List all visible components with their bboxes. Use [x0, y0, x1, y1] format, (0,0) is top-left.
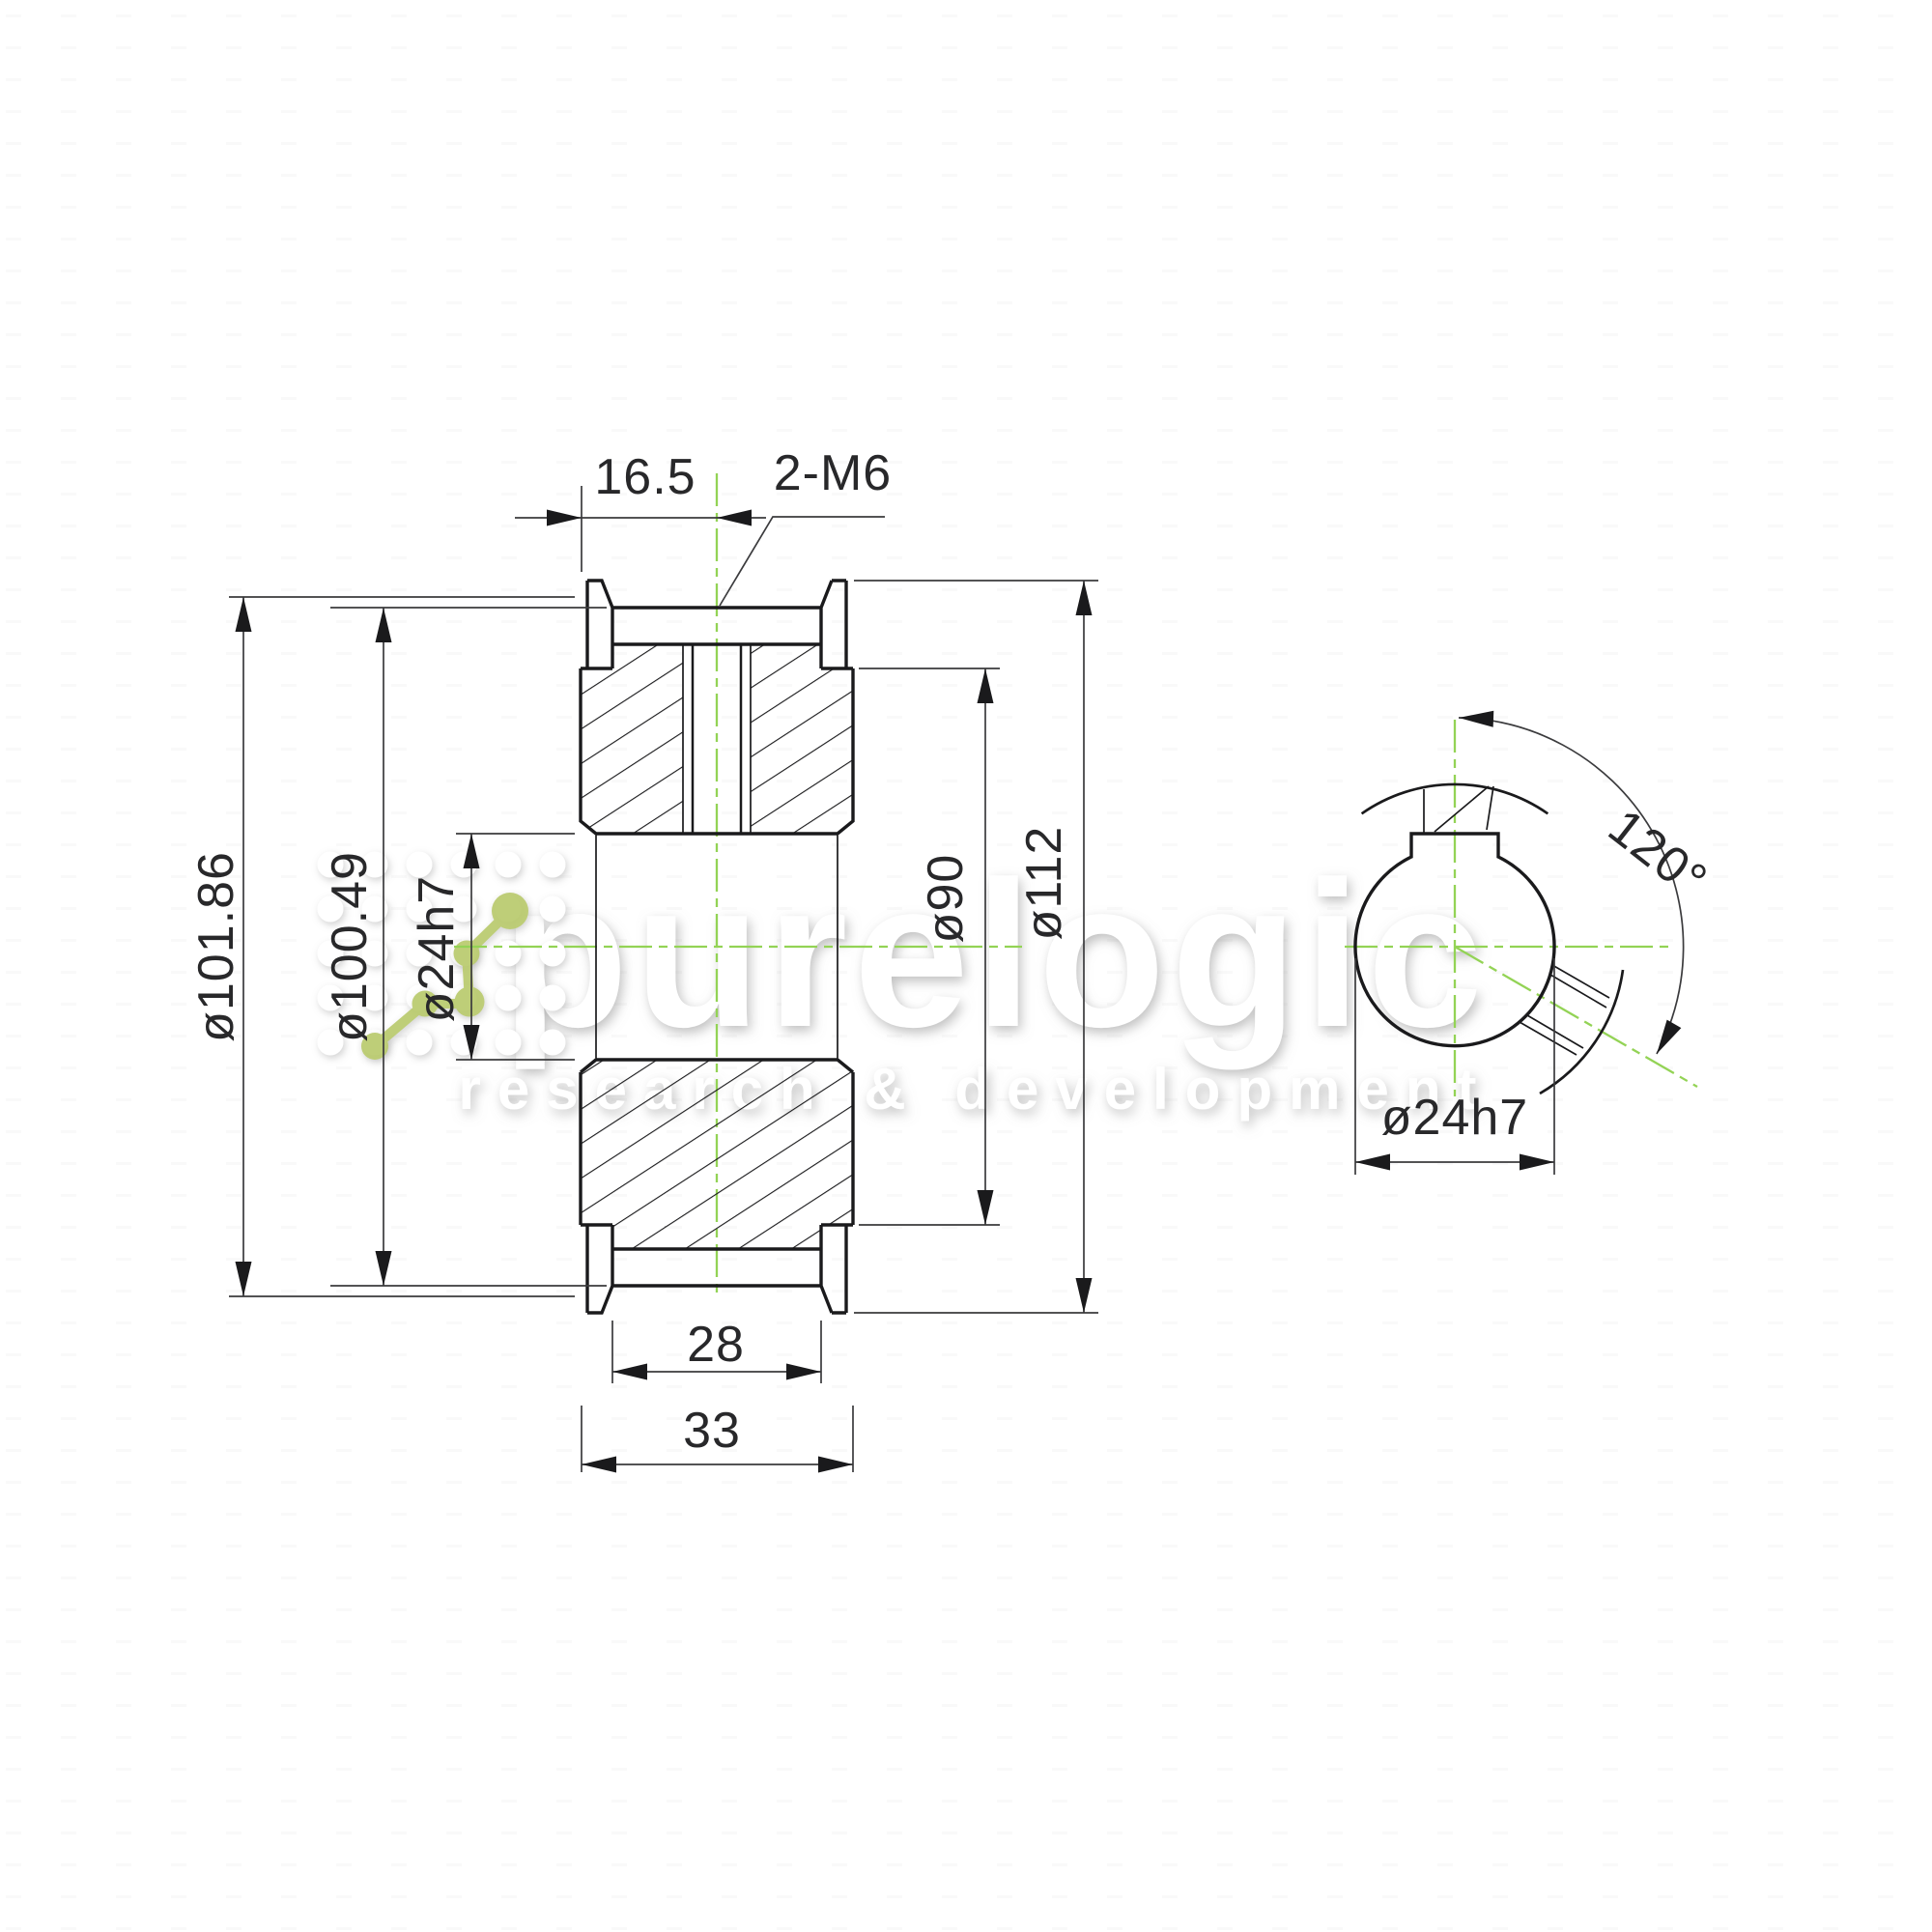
- section-hatch-upper-left: [581, 644, 683, 834]
- dim-label-dia-112: ø112: [1016, 826, 1072, 941]
- watermark-dot: [407, 852, 433, 878]
- watermark-dot: [540, 985, 566, 1011]
- dim-label-2-m6: 2-M6: [774, 445, 892, 501]
- watermark-dot: [540, 852, 566, 878]
- watermark-dot: [496, 985, 522, 1011]
- watermark-dot: [540, 896, 566, 923]
- watermark-dot: [496, 1030, 522, 1056]
- dim-label-dia-101-86: ø101.86: [188, 851, 244, 1042]
- section-hatch-lower: [581, 1060, 853, 1249]
- dim-label-offset-16-5: 16.5: [594, 449, 696, 505]
- dim-label-dia-24h7-side: ø24h7: [1381, 1090, 1528, 1146]
- section-hatch-upper-right: [751, 644, 853, 834]
- watermark-brand: purelogic: [501, 838, 1489, 1070]
- dim-label-dia-90: ø90: [918, 854, 974, 944]
- dim-label-width-33: 33: [683, 1403, 741, 1459]
- watermark-dot: [540, 941, 566, 967]
- technical-drawing: purelogic research & development: [0, 0, 1932, 1932]
- watermark-dot: [540, 1030, 566, 1056]
- watermark-dot: [407, 1030, 433, 1056]
- dim-label-dia-100-49: ø100.49: [322, 851, 378, 1042]
- dim-label-width-28: 28: [687, 1317, 745, 1373]
- watermark-dot: [496, 941, 522, 967]
- dim-label-dia-24h7-front: ø24h7: [409, 875, 465, 1022]
- watermark-dot: [496, 852, 522, 878]
